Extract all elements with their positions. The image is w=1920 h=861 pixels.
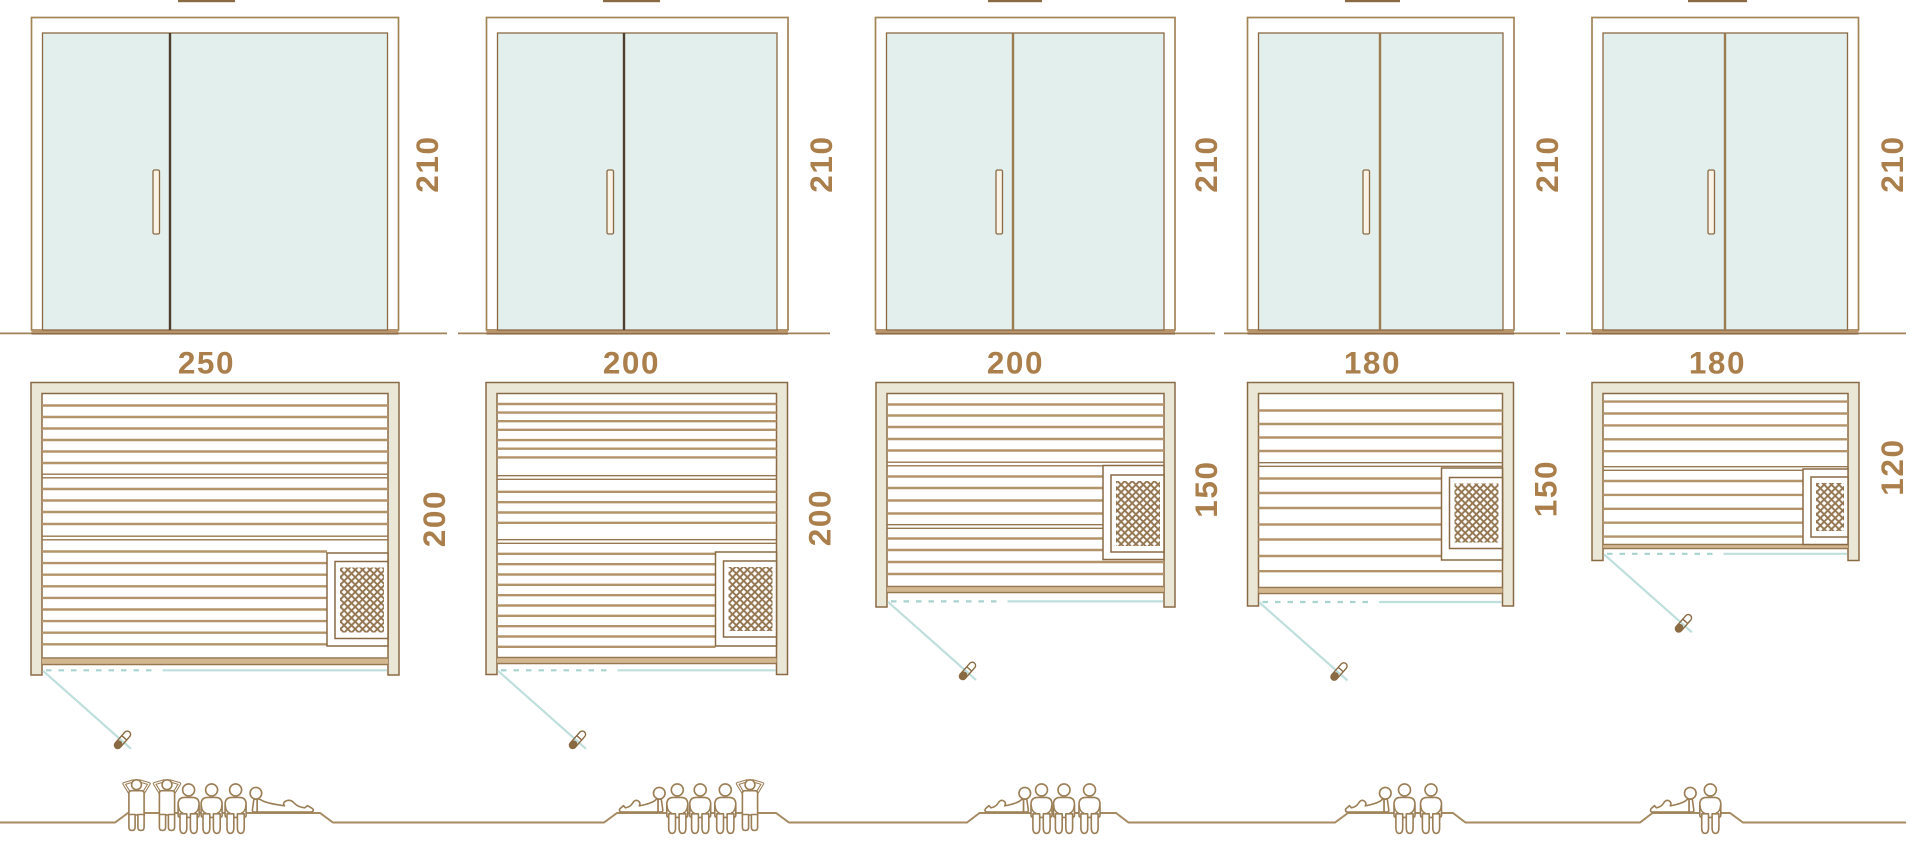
svg-text:210: 210 <box>1874 135 1910 192</box>
svg-text:250: 250 <box>178 345 235 381</box>
svg-text:200: 200 <box>603 345 660 381</box>
svg-text:150: 150 <box>1528 460 1564 517</box>
svg-text:150: 150 <box>1188 460 1224 517</box>
svg-text:200: 200 <box>416 490 452 547</box>
svg-text:210: 210 <box>803 135 839 192</box>
svg-text:120: 120 <box>1874 438 1910 495</box>
svg-text:200: 200 <box>987 345 1044 381</box>
svg-text:210: 210 <box>1529 135 1565 192</box>
svg-text:200: 200 <box>802 489 838 546</box>
svg-text:210: 210 <box>409 135 445 192</box>
svg-text:180: 180 <box>1344 345 1401 381</box>
svg-text:180: 180 <box>1689 345 1746 381</box>
svg-text:210: 210 <box>1188 135 1224 192</box>
